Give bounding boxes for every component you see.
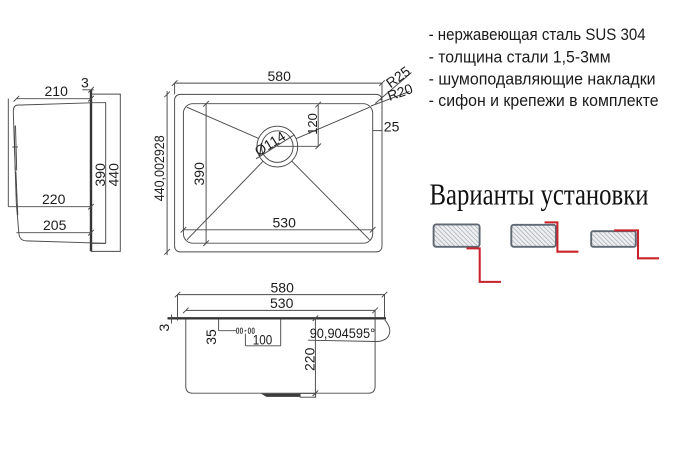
svg-text:100: 100 [253,332,273,348]
svg-text:580: 580 [268,68,292,84]
svg-text:530: 530 [273,214,297,230]
svg-text:530: 530 [270,295,294,311]
svg-text:440,002928: 440,002928 [151,135,167,201]
svg-text:35: 35 [203,329,219,345]
svg-text:- шумоподавляющие накладки: - шумоподавляющие накладки [429,69,656,88]
svg-text:440: 440 [106,163,122,187]
svg-text:220: 220 [301,347,317,371]
svg-text:Варианты установки: Варианты установки [430,176,649,211]
svg-text:- сифон и крепежи в комплекте: - сифон и крепежи в комплекте [429,91,659,110]
svg-text:205: 205 [43,217,67,233]
svg-text:- нержавеющая сталь SUS 304: - нержавеющая сталь SUS 304 [429,25,646,44]
svg-text:90,904595°: 90,904595° [310,325,376,341]
svg-text:580: 580 [271,280,295,296]
svg-text:210: 210 [45,83,69,99]
svg-text:390: 390 [191,162,207,186]
svg-text:3: 3 [81,75,89,91]
svg-text:3: 3 [156,324,172,332]
svg-text:- толщина стали 1,5-3мм: - толщина стали 1,5-3мм [429,48,611,67]
svg-text:25: 25 [384,119,400,135]
svg-text:120: 120 [305,113,320,135]
svg-text:220: 220 [42,191,66,207]
